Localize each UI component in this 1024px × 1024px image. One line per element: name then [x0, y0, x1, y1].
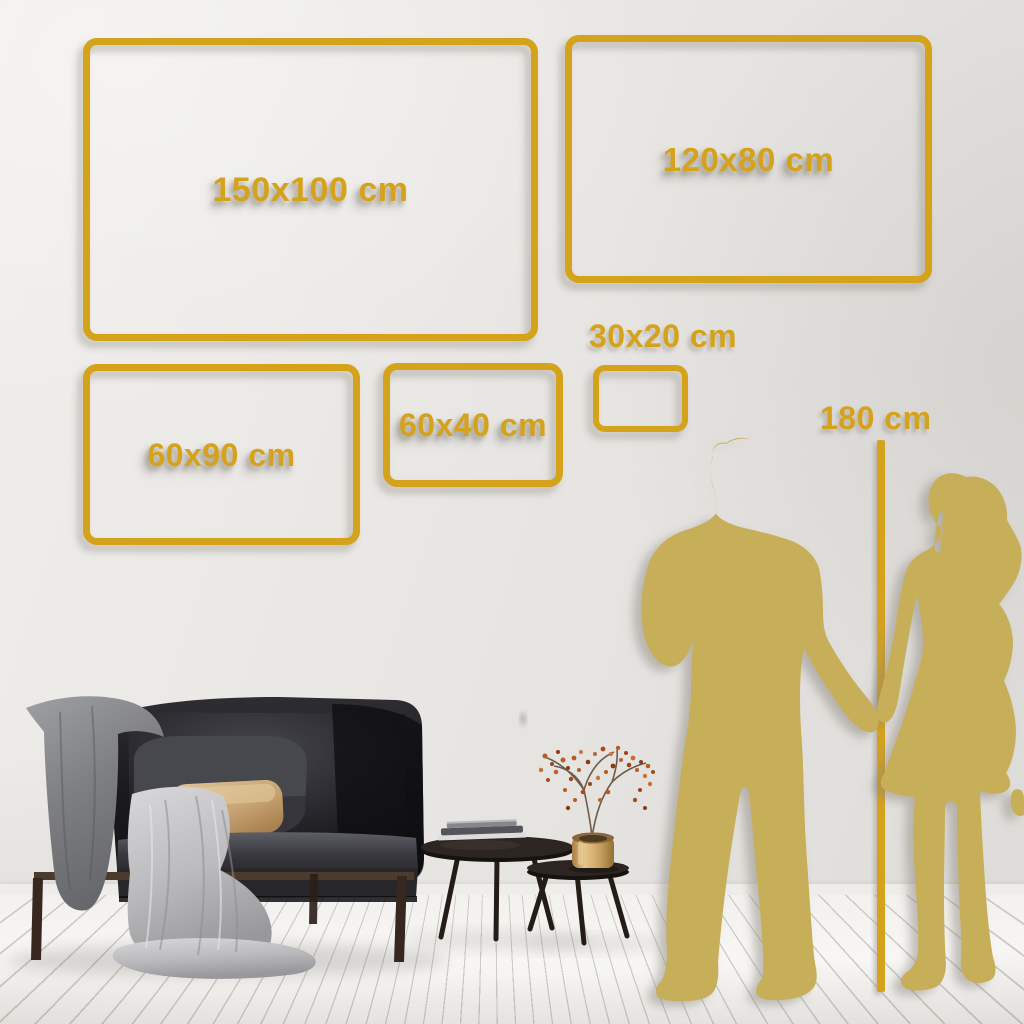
couple-silhouettes — [0, 0, 1024, 1024]
size-guide-scene: 150x100 cm 120x80 cm 60x90 cm 60x40 cm 3… — [0, 0, 1024, 1024]
height-reference-label: 180 cm — [820, 402, 932, 434]
woman-silhouette — [876, 473, 1024, 990]
man-silhouette — [641, 438, 878, 1001]
